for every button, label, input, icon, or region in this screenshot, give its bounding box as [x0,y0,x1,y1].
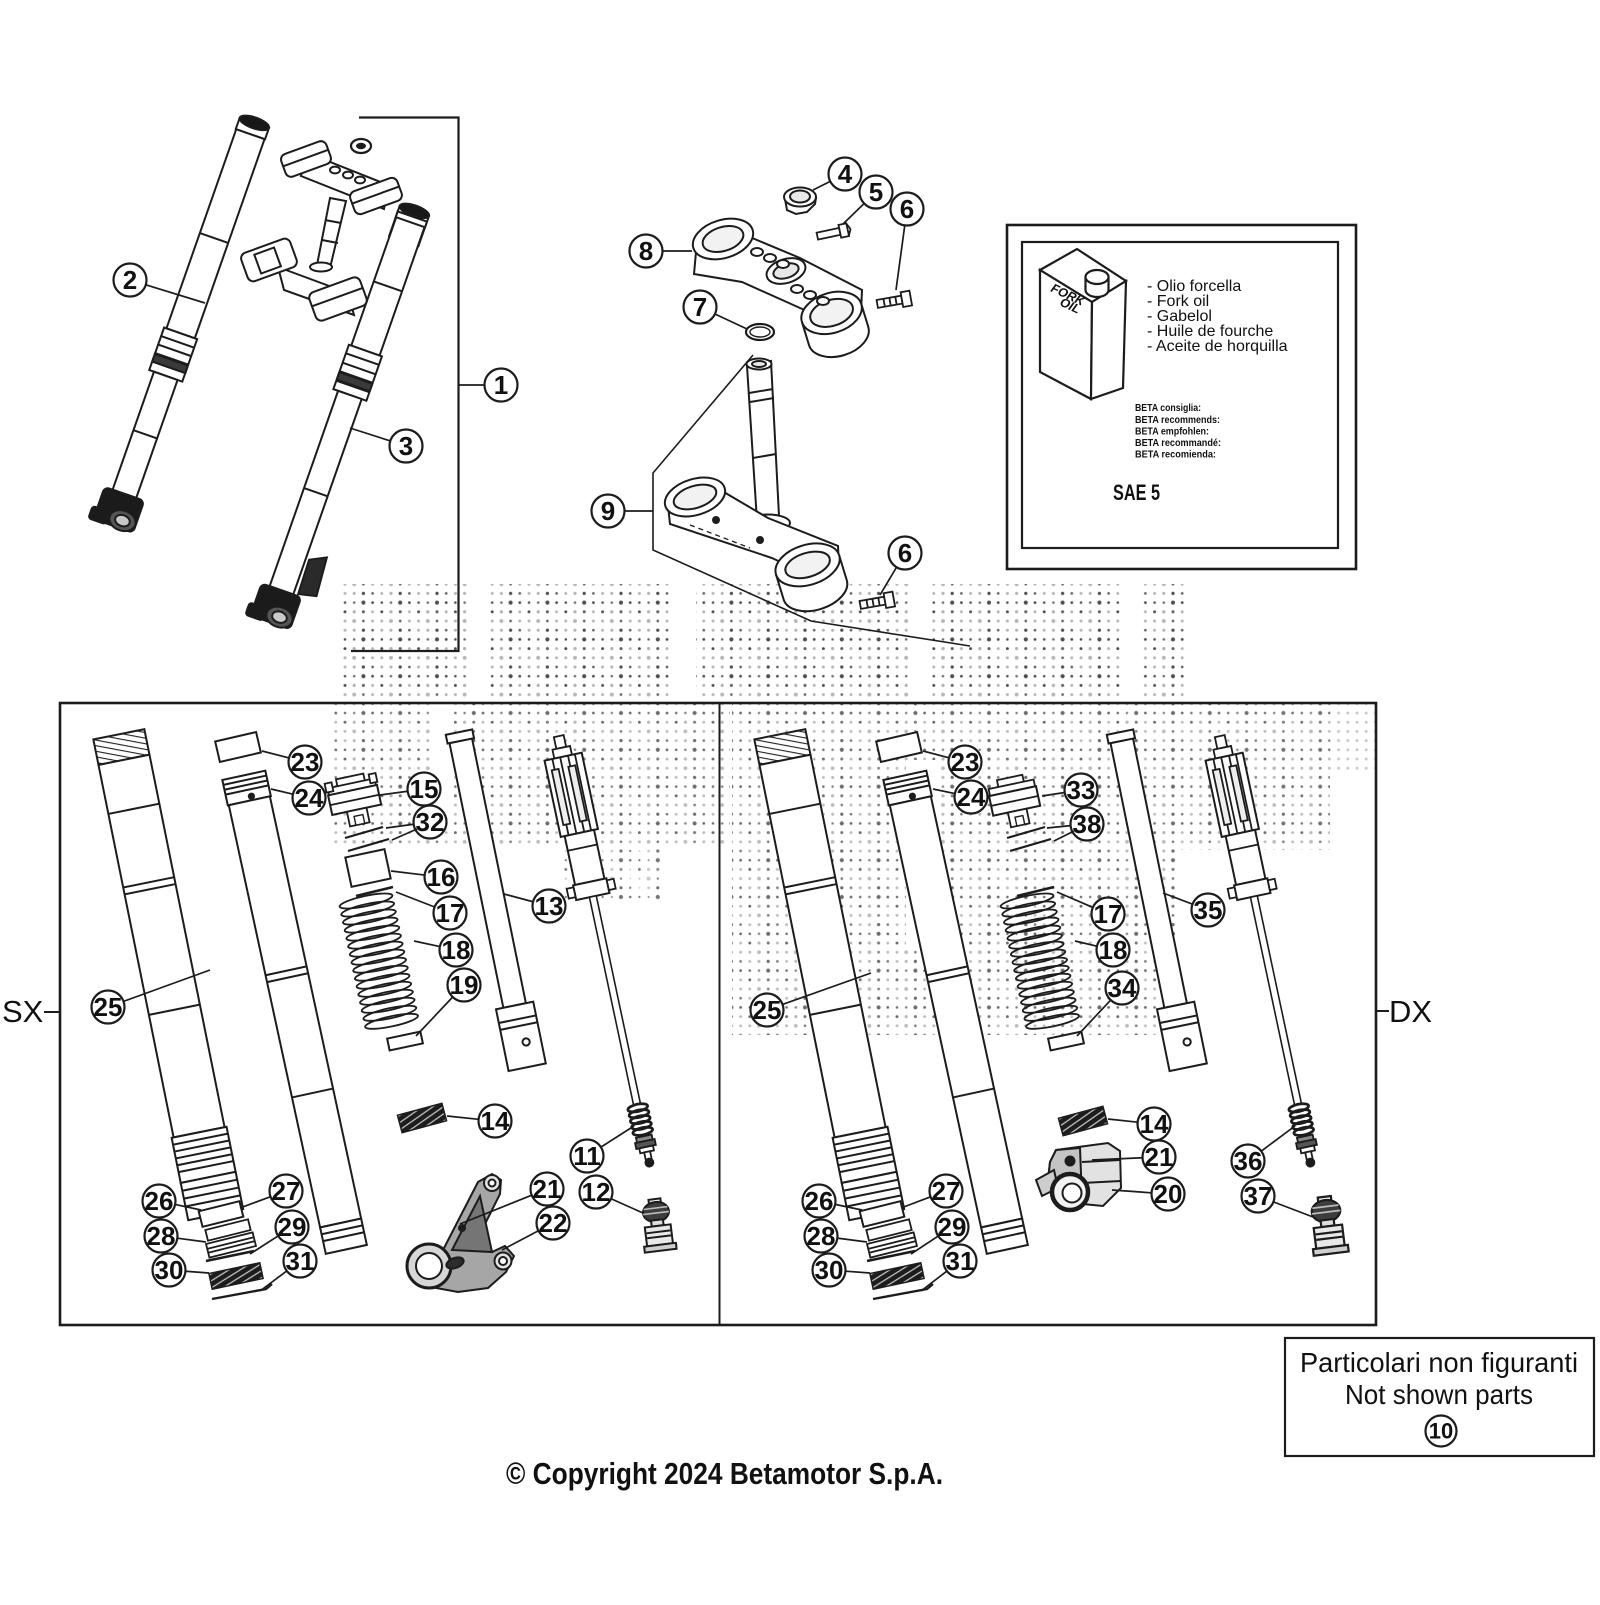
svg-text:31: 31 [946,1246,975,1276]
svg-text:28: 28 [147,1221,176,1251]
svg-text:BETA empfohlen:: BETA empfohlen: [1135,426,1209,438]
svg-text:35: 35 [1194,895,1223,925]
svg-text:14: 14 [481,1106,510,1136]
svg-text:SX: SX [2,994,44,1029]
svg-text:25: 25 [94,992,123,1022]
svg-text:37: 37 [1244,1181,1273,1211]
svg-text:DX: DX [1389,994,1432,1029]
svg-text:26: 26 [145,1186,174,1216]
svg-text:13: 13 [535,891,564,921]
svg-text:11: 11 [573,1141,601,1171]
svg-text:18: 18 [442,935,471,965]
svg-text:© Copyright 2024 Betamotor S.p: © Copyright 2024 Betamotor S.p.A. [506,1456,943,1491]
svg-text:16: 16 [427,862,456,892]
svg-text:BETA consiglia:: BETA consiglia: [1135,402,1201,414]
svg-text:33: 33 [1067,775,1096,805]
svg-text:34: 34 [1108,973,1137,1003]
svg-text:4: 4 [838,159,853,189]
svg-text:31: 31 [286,1246,315,1276]
svg-text:29: 29 [938,1212,967,1242]
svg-text:21: 21 [1145,1142,1174,1172]
svg-text:15: 15 [410,774,439,804]
svg-text:20: 20 [1154,1179,1183,1209]
svg-text:23: 23 [951,747,980,777]
svg-text:24: 24 [295,783,324,813]
svg-text:BETA recommends:: BETA recommends: [1135,414,1220,426]
svg-text:12: 12 [582,1177,611,1207]
svg-text:30: 30 [155,1255,184,1285]
svg-text:26: 26 [805,1186,834,1216]
svg-text:30: 30 [815,1255,844,1285]
svg-text:7: 7 [693,292,707,322]
svg-text:SAE 5: SAE 5 [1113,480,1160,505]
svg-text:BETA recomienda:: BETA recomienda: [1135,449,1216,461]
svg-text:2: 2 [123,265,137,295]
svg-text:38: 38 [1073,809,1102,839]
svg-text:27: 27 [932,1176,961,1206]
svg-text:3: 3 [399,431,413,461]
svg-text:6: 6 [900,194,914,224]
svg-text:17: 17 [1094,899,1123,929]
svg-text:21: 21 [533,1174,562,1204]
svg-text:28: 28 [807,1221,836,1251]
svg-text:19: 19 [450,970,479,1000]
svg-text:24: 24 [957,782,986,812]
svg-text:6: 6 [898,538,912,568]
svg-text:23: 23 [291,747,320,777]
svg-text:25: 25 [753,995,782,1025]
svg-text:BETA recommandé:: BETA recommandé: [1135,437,1221,449]
svg-text:27: 27 [272,1176,301,1206]
svg-text:29: 29 [278,1212,307,1242]
svg-text:18: 18 [1099,935,1128,965]
svg-text:10: 10 [1429,1419,1453,1444]
svg-text:8: 8 [639,236,653,266]
svg-text:1: 1 [494,370,508,400]
svg-text:Particolari non figuranti: Particolari non figuranti [1300,1347,1578,1378]
svg-text:Not shown parts: Not shown parts [1345,1379,1533,1410]
svg-text:36: 36 [1234,1146,1263,1176]
svg-text:9: 9 [601,496,615,526]
svg-text:5: 5 [869,177,883,207]
svg-text:- Aceite de horquilla: - Aceite de horquilla [1147,338,1288,355]
svg-text:17: 17 [436,898,465,928]
svg-text:14: 14 [1140,1109,1169,1139]
svg-text:22: 22 [539,1208,568,1238]
svg-text:32: 32 [416,807,445,837]
